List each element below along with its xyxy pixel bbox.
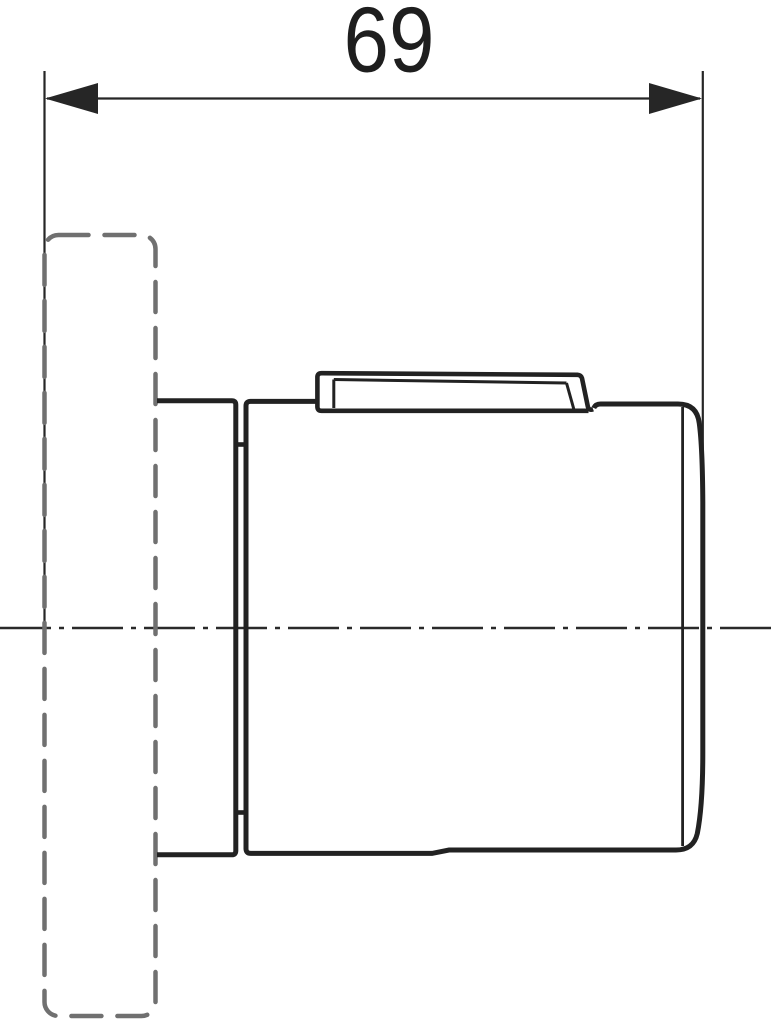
svg-text:69: 69 bbox=[344, 0, 435, 92]
